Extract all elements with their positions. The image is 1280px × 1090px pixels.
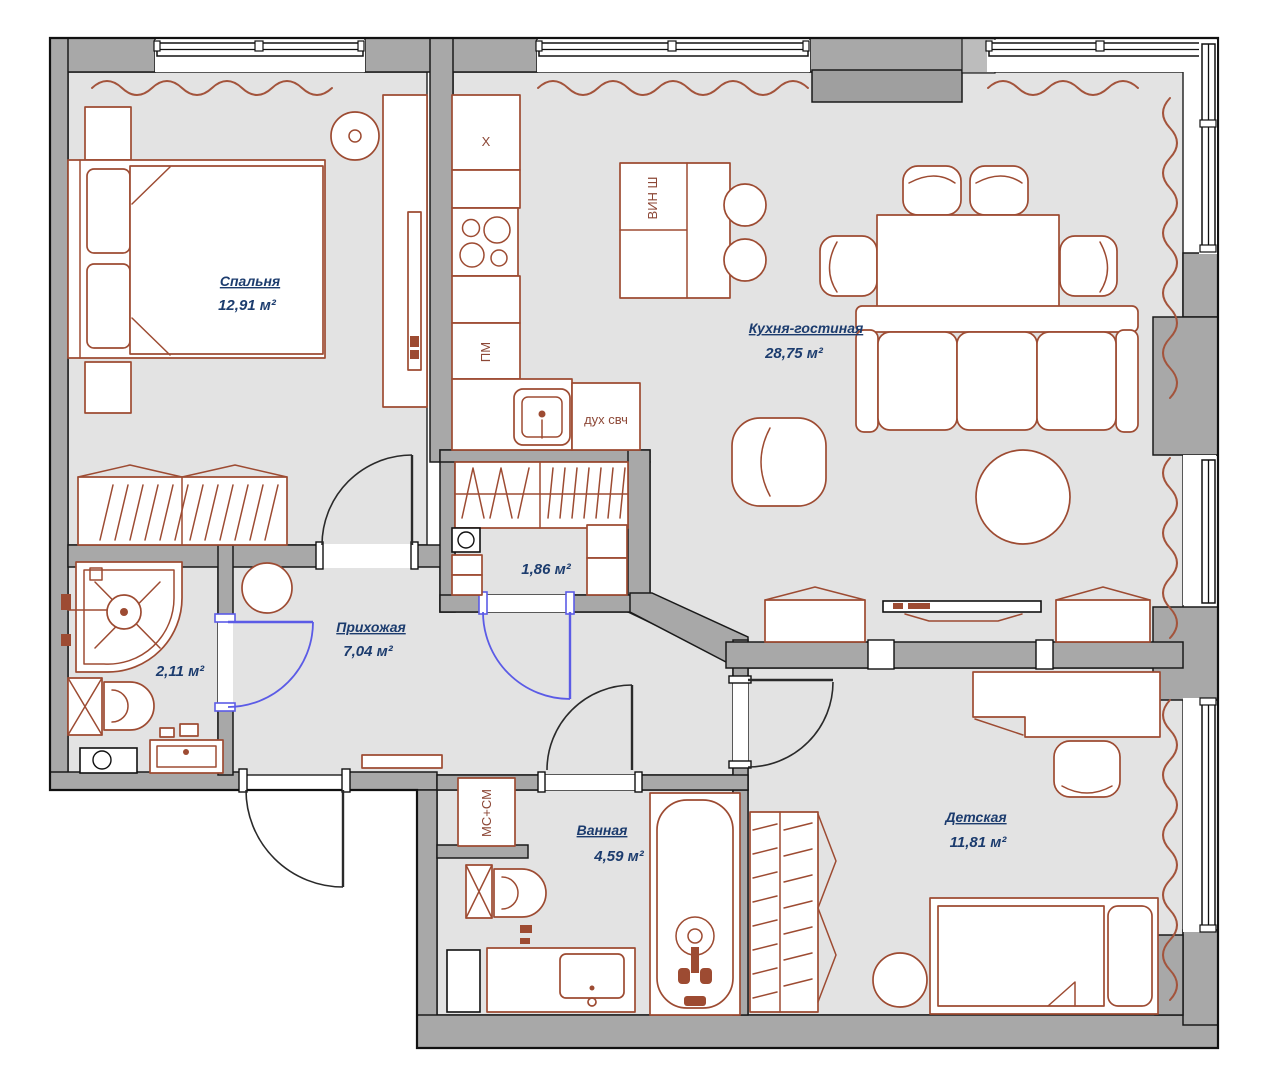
faucet bbox=[160, 728, 174, 737]
dining-chair bbox=[1060, 236, 1117, 296]
entry-door-arc bbox=[246, 790, 343, 887]
hall-console bbox=[362, 755, 442, 768]
bathtub bbox=[657, 800, 733, 1008]
kids-wardrobe bbox=[750, 812, 818, 1012]
fridge-label: Х bbox=[482, 134, 491, 149]
wardrobe-area: 1,86 м² bbox=[521, 561, 571, 578]
hallway-area: 7,04 м² bbox=[343, 643, 393, 660]
toilet bbox=[494, 869, 546, 917]
bathroom-area: 4,59 м² bbox=[593, 848, 644, 865]
dining-chair bbox=[970, 166, 1028, 215]
dining-chair bbox=[903, 166, 961, 215]
pendant-lamp bbox=[331, 112, 379, 160]
nightstand bbox=[85, 107, 131, 160]
pillow bbox=[87, 169, 130, 253]
sofa-arm bbox=[1116, 330, 1138, 432]
vanity-sink bbox=[560, 954, 624, 998]
mattress bbox=[130, 166, 323, 354]
oven-microwave-label: дух свч bbox=[584, 412, 628, 427]
cooktop bbox=[452, 208, 518, 276]
floor-plan: Спальня 12,91 м² Кухня-гостиная 28,75 м²… bbox=[0, 0, 1280, 1090]
floor-plan-page: Спальня 12,91 м² Кухня-гостиная 28,75 м²… bbox=[0, 0, 1280, 1090]
sofa-back bbox=[856, 306, 1138, 332]
sofa-cushion bbox=[878, 332, 957, 430]
nightstand bbox=[85, 362, 131, 413]
dining-chair bbox=[820, 236, 877, 296]
bedroom-kitchen-wall bbox=[430, 38, 453, 462]
tv-screen bbox=[883, 601, 1041, 612]
kitchen-living-name: Кухня-гостиная bbox=[749, 320, 863, 336]
pouf bbox=[873, 953, 927, 1007]
tv-cabinet bbox=[765, 600, 865, 642]
wardrobe-rack bbox=[455, 462, 628, 528]
desk-chair bbox=[1054, 741, 1120, 797]
bathroom-name: Ванная bbox=[577, 822, 628, 838]
kids-room-name: Детская bbox=[944, 809, 1006, 825]
round-rug bbox=[976, 450, 1070, 544]
kids-room-area: 11,81 м² bbox=[950, 834, 1008, 851]
pillow bbox=[87, 264, 130, 348]
dishwasher-label: ПМ bbox=[478, 342, 493, 362]
washer-dryer-label: МС+СМ bbox=[479, 789, 494, 837]
kitchen-counter bbox=[452, 276, 520, 323]
sofa-cushion bbox=[957, 332, 1037, 430]
closet-shelf bbox=[587, 525, 627, 558]
bedroom-area: 12,91 м² bbox=[218, 297, 277, 314]
hall-mirror bbox=[242, 563, 292, 613]
closet-shelf bbox=[587, 558, 627, 595]
bar-stool bbox=[724, 239, 766, 281]
dining-table bbox=[877, 215, 1059, 307]
kids-mattress bbox=[938, 906, 1104, 1006]
wine-cabinet-label: ВИН Ш bbox=[645, 177, 660, 220]
faucet bbox=[588, 998, 596, 1006]
fridge bbox=[452, 95, 520, 170]
tv-cabinet bbox=[1056, 600, 1150, 642]
pillow bbox=[1108, 906, 1152, 1006]
bedroom-name: Спальня bbox=[220, 273, 280, 289]
tv-wall bbox=[726, 642, 1183, 668]
top-pillar bbox=[812, 70, 962, 102]
toilet bbox=[104, 682, 154, 730]
armchair bbox=[732, 418, 826, 506]
hallway-name: Прихожая bbox=[336, 619, 406, 635]
washing-machine bbox=[80, 748, 137, 773]
vanity bbox=[150, 740, 223, 773]
kitchen-counter bbox=[452, 170, 520, 208]
sofa-cushion bbox=[1037, 332, 1116, 430]
sofa-arm bbox=[856, 330, 878, 432]
bar-stool bbox=[724, 184, 766, 226]
faucet bbox=[180, 724, 198, 736]
closet-shelf bbox=[452, 575, 482, 595]
closet-shelf bbox=[452, 555, 482, 575]
bath-cabinet bbox=[447, 950, 480, 1012]
kitchen-living-area: 28,75 м² bbox=[764, 345, 824, 362]
shower-room-area: 2,11 м² bbox=[155, 663, 205, 680]
